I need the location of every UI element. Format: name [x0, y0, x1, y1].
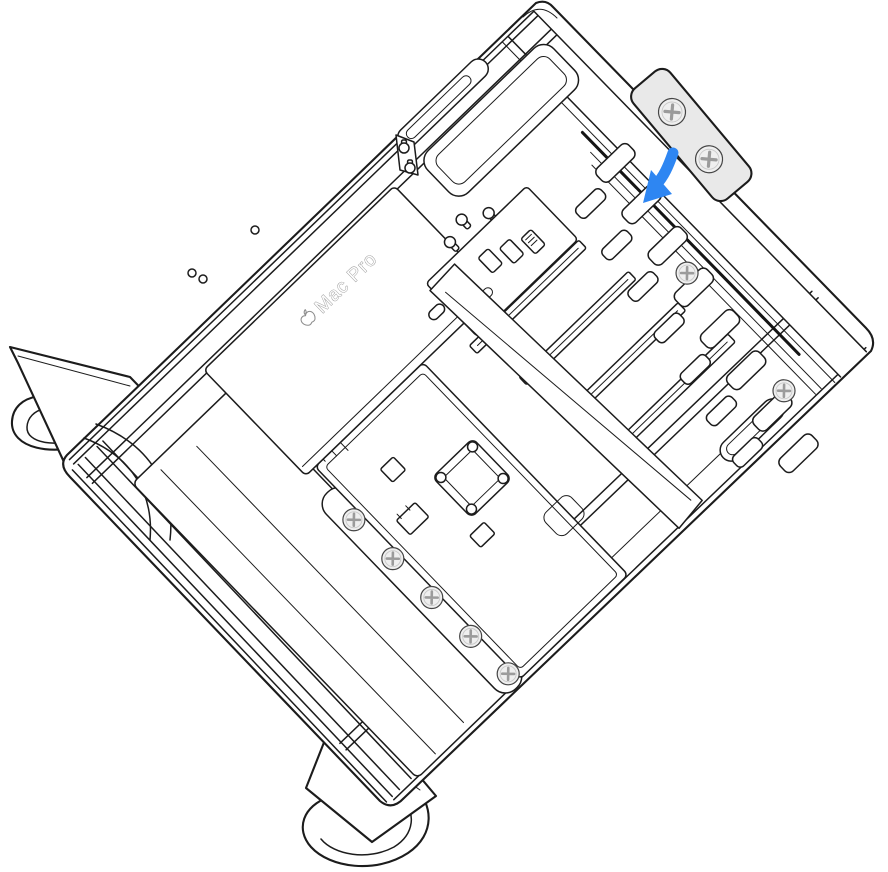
mac-pro-illustration: Mac Pro	[0, 0, 888, 872]
mac-pro-illustration-stage: Mac Pro	[0, 0, 888, 872]
